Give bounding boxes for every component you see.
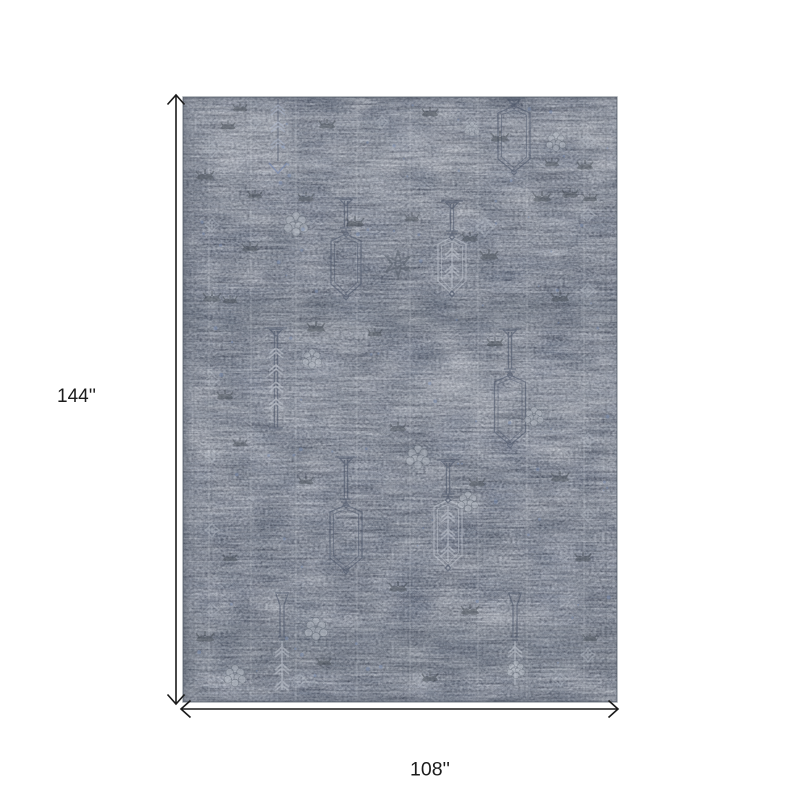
svg-text:144'': 144''	[57, 386, 96, 407]
svg-text:108'': 108''	[410, 759, 450, 781]
